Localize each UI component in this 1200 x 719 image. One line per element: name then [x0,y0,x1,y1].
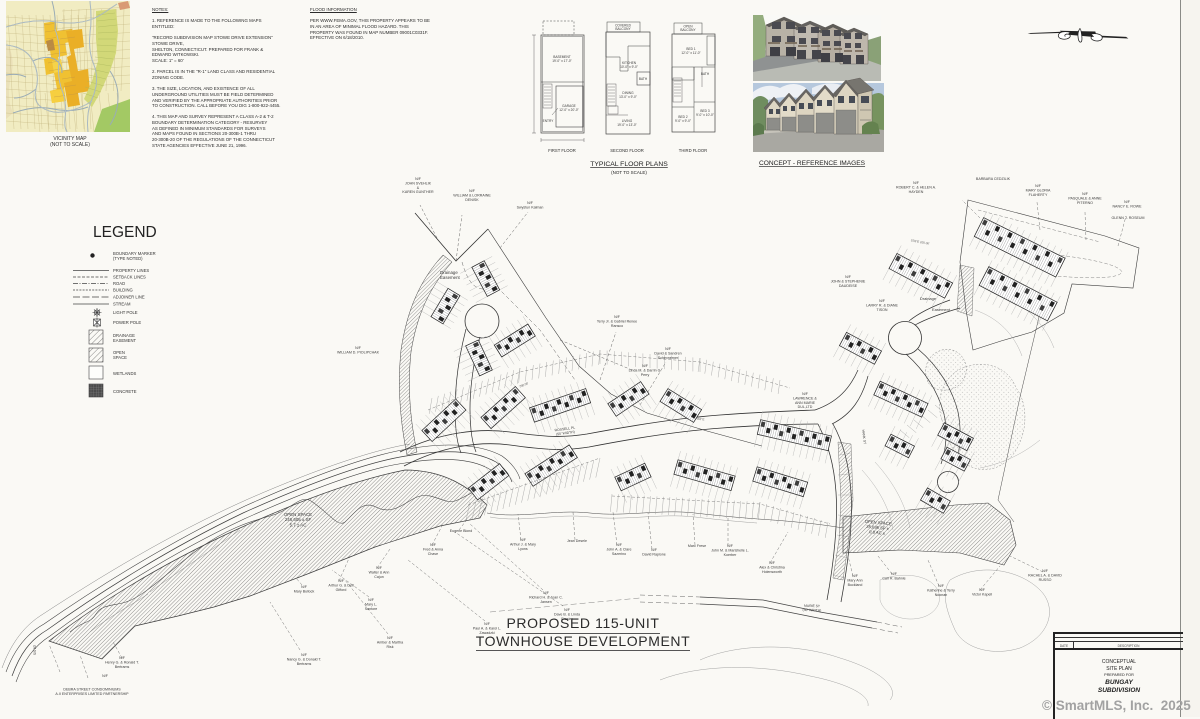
svg-text:N/F: N/F [614,315,621,319]
svg-text:N/F: N/F [616,543,623,547]
svg-text:Mary L.: Mary L. [365,602,377,606]
svg-text:HAYDEN: HAYDEN [909,190,924,194]
svg-text:N/F: N/F [469,189,476,193]
svg-text:Alex & Christina: Alex & Christina [759,565,785,569]
svg-text:JOHN SVEHLIK: JOHN SVEHLIK [405,181,432,185]
svg-text:Marc Frese: Marc Frese [688,544,706,548]
svg-text:John A. & Clare: John A. & Clare [607,547,632,551]
svg-text:Arthur J. & Mary: Arthur J. & Mary [510,542,536,546]
svg-text:LARRY R. & DIANE: LARRY R. & DIANE [866,303,898,307]
svg-text:Noonan: Noonan [935,593,948,597]
svg-text:Lyons: Lyons [518,547,528,551]
svg-text:Eugene Blond: Eugene Blond [450,529,473,533]
svg-text:N/F: N/F [651,548,658,552]
svg-text:DENISK: DENISK [465,198,479,202]
svg-text:Mary Ann: Mary Ann [847,578,862,582]
svg-text:N/F: N/F [527,201,534,205]
svg-text:Nancy G. & Donald T.: Nancy G. & Donald T. [287,657,322,661]
svg-text:Perry: Perry [641,373,650,377]
svg-text:N/F: N/F [979,588,986,592]
svg-text:HANK ST: HANK ST [861,429,867,444]
svg-text:N/F: N/F [938,584,945,588]
svg-text:(50' WIDTH): (50' WIDTH) [802,608,821,613]
svg-text:KAREN GUNTHER: KAREN GUNTHER [402,190,434,194]
svg-text:N/F: N/F [665,347,672,351]
svg-text:Buckland: Buckland [848,583,863,587]
svg-text:RUSSO: RUSSO [1039,578,1052,582]
svg-text:N/F: N/F [913,181,920,185]
svg-text:TISON: TISON [877,308,888,312]
svg-text:NANCY E. ROWE: NANCY E. ROWE [1112,204,1142,208]
svg-text:David & Sandren: David & Sandren [654,351,681,355]
svg-text:N62°E: N62°E [696,416,705,421]
svg-text:Jansen: Jansen [540,600,552,604]
svg-text:Santore: Santore [365,607,378,611]
svg-text:Drainage: Drainage [920,296,937,301]
svg-text:Ransco: Ransco [611,324,623,328]
svg-text:Chave: Chave [428,552,438,556]
svg-text:ANN MARIE: ANN MARIE [795,401,816,405]
svg-text:Bertrams: Bertrams [297,662,312,666]
svg-text:N/F: N/F [376,566,383,570]
svg-text:N/F: N/F [520,538,527,542]
svg-text:N/F: N/F [642,364,649,368]
svg-text:PASQUALE & ANNE: PASQUALE & ANNE [1068,196,1102,200]
svg-text:WILLIAM D. PIOLIPCHAK: WILLIAM D. PIOLIPCHAK [337,350,380,354]
svg-text:GLENN J. ROSEUM: GLENN J. ROSEUM [1112,216,1145,220]
svg-text:N/F: N/F [1124,200,1131,204]
svg-text:Terry Jr. & Gabriel Renee: Terry Jr. & Gabriel Renee [597,319,637,323]
svg-text:Easement: Easement [932,307,951,312]
svg-text:DEBRA STREET CONDOMINIUMS: DEBRA STREET CONDOMINIUMS [63,687,121,691]
svg-text:N/F: N/F [845,275,852,279]
svg-text:Amber & Martha: Amber & Martha [377,640,403,644]
svg-text:Easement: Easement [440,275,461,280]
svg-text:DAUDEISE: DAUDEISE [839,284,858,288]
svg-text:FLAHERTY: FLAHERTY [1029,193,1048,197]
svg-text:N/F: N/F [415,177,422,181]
svg-text:ROBERT C. & HELEN A.: ROBERT C. & HELEN A. [896,185,936,189]
svg-text:BARBARA CEDZILIK: BARBARA CEDZILIK [976,177,1011,181]
svg-text:JOHN & STEPHENIE: JOHN & STEPHENIE [831,279,866,283]
svg-text:Carl R. Bahnle: Carl R. Bahnle [882,576,905,580]
svg-text:John M. & Marishelle L.: John M. & Marishelle L. [711,548,749,552]
svg-text:A.II ENTERPRISES LIMITED PARTN: A.II ENTERPRISES LIMITED PARTNERSHIP [55,692,129,696]
svg-text:Katherine & Terry: Katherine & Terry [927,588,955,592]
svg-text:N/F: N/F [301,653,308,657]
svg-text:Gifford: Gifford [336,588,347,592]
svg-text:PITERNO: PITERNO [1077,201,1093,205]
svg-text:Mary Bullock: Mary Bullock [294,589,315,593]
svg-text:Victor Kapell: Victor Kapell [972,592,992,596]
svg-text:N/F: N/F [368,598,375,602]
svg-text:Cajun: Cajun [374,575,383,579]
svg-text:Fred & Anna: Fred & Anna [423,547,443,551]
svg-text:Jean Desele: Jean Desele [567,539,587,543]
svg-text:N/F: N/F [891,572,898,576]
svg-text:Schexnerner: Schexnerner [658,356,679,360]
svg-text:N/F: N/F [387,636,394,640]
svg-text:750.00: 750.00 [518,381,529,389]
svg-text:N/F: N/F [769,561,776,565]
svg-text:Arthur G. & Dell: Arthur G. & Dell [328,583,353,587]
svg-text:WILLIAM & LORRAINE: WILLIAM & LORRAINE [453,193,491,197]
svg-text:N/F: N/F [852,574,859,578]
svg-text:LAWRENCE &: LAWRENCE & [793,396,817,400]
svg-text:&: & [417,186,420,190]
svg-text:Swystun Kalman: Swystun Kalman [517,205,544,209]
svg-text:S/S 60': S/S 60' [33,645,37,656]
svg-text:Bertrams: Bertrams [115,665,130,669]
svg-text:N/F: N/F [1082,192,1089,196]
svg-text:Richard H. & Joan C.: Richard H. & Joan C. [529,595,563,599]
svg-text:Koerber: Koerber [724,553,738,557]
svg-text:Sazerino: Sazerino [612,552,626,556]
svg-text:N/F: N/F [430,543,437,547]
svg-text:N/F: N/F [727,544,734,548]
svg-text:N/F: N/F [301,585,308,589]
svg-text:N/F: N/F [802,392,809,396]
svg-text:MARY GLORIA: MARY GLORIA [1026,188,1051,192]
svg-text:Risk: Risk [387,645,394,649]
svg-text:S78°E 320.00': S78°E 320.00' [910,238,930,245]
svg-text:Henry G. & Ronald T.: Henry G. & Ronald T. [105,660,139,664]
svg-text:N/F: N/F [564,608,571,612]
svg-text:5.7 ± AC: 5.7 ± AC [290,522,307,527]
svg-text:N/F: N/F [543,591,550,595]
svg-text:N/F: N/F [1042,569,1049,573]
svg-text:Holensworth: Holensworth [762,570,782,574]
svg-text:N/F: N/F [1035,184,1042,188]
svg-text:N/F: N/F [355,346,362,350]
svg-text:Walter & Ann: Walter & Ann [369,570,390,574]
svg-text:RACHEL A. & DAVID: RACHEL A. & DAVID [1028,573,1062,577]
svg-text:David Rapione: David Rapione [642,552,666,556]
svg-text:N/F: N/F [119,656,126,660]
svg-text:N/F: N/F [338,579,345,583]
svg-text:N/F: N/F [879,299,886,303]
svg-text:N/F: N/F [102,674,109,678]
svg-text:DUL,LTD: DUL,LTD [798,405,813,409]
svg-text:Linda M. & Darrin G.: Linda M. & Darrin G. [629,368,662,372]
